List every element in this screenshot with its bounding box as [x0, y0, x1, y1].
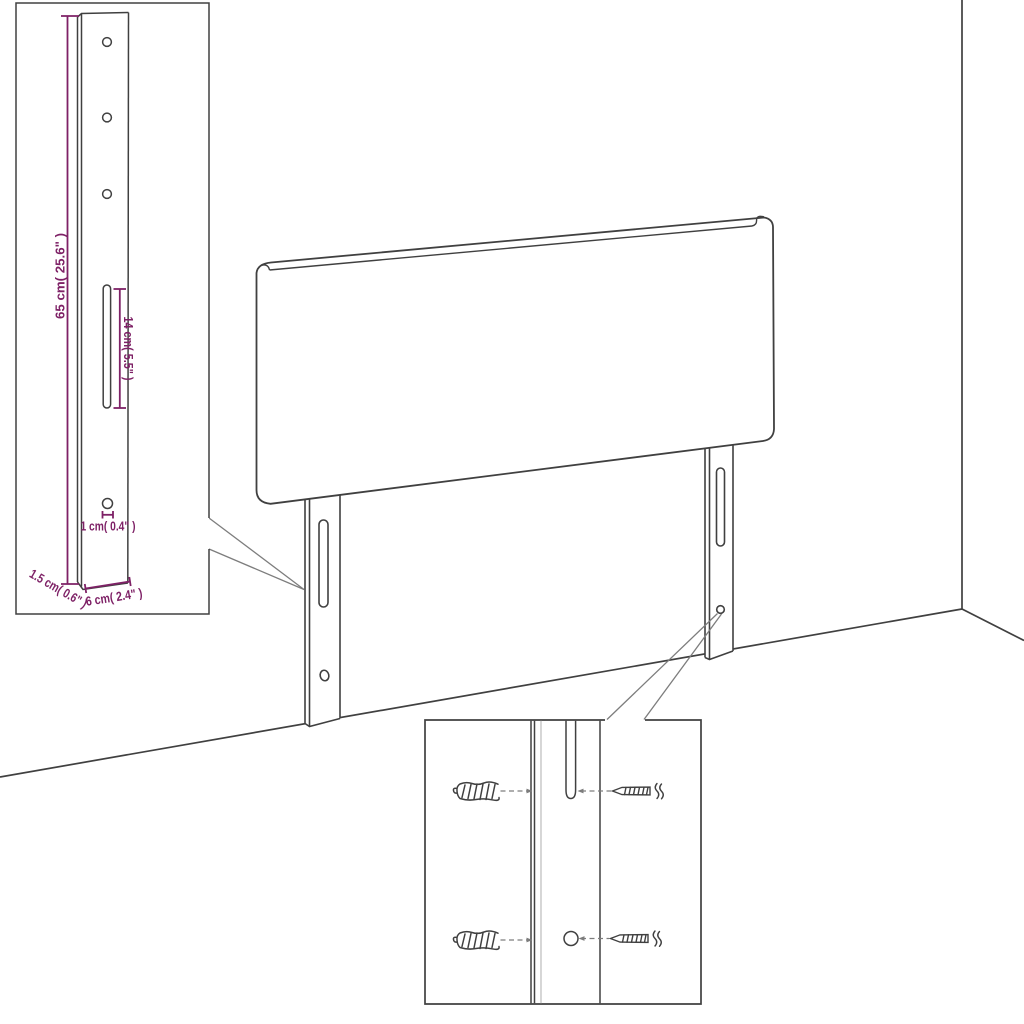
floor-line-right [962, 609, 1024, 641]
headboard-face [257, 218, 775, 504]
callout-lines-left [209, 518, 304, 590]
callout-line [209, 549, 304, 590]
leg-height-label: 65 cm( 25.6" ) [53, 233, 68, 319]
leg-dimension-inset: 65 cm( 25.6" ) 14 cm( 5.5" ) 1 cm( 0.4" … [16, 3, 209, 614]
callout-line [644, 614, 722, 720]
callout-line [607, 614, 718, 720]
inset-background [425, 720, 701, 1004]
slot-length-label: 14 cm( 5.5" ) [121, 317, 136, 381]
hole-diameter-label: 1 cm( 0.4" ) [81, 519, 136, 534]
diagram-canvas: 65 cm( 25.6" ) 14 cm( 5.5" ) 1 cm( 0.4" … [0, 0, 1024, 1024]
inset-leg-right-edge [128, 13, 129, 584]
mounting-hardware-inset [425, 720, 701, 1004]
left-leg [305, 488, 340, 727]
right-leg [705, 438, 733, 660]
headboard-panel [257, 216, 775, 503]
callout-line [209, 518, 304, 590]
headboard-diagram: 65 cm( 25.6" ) 14 cm( 5.5" ) 1 cm( 0.4" … [0, 0, 1024, 1024]
